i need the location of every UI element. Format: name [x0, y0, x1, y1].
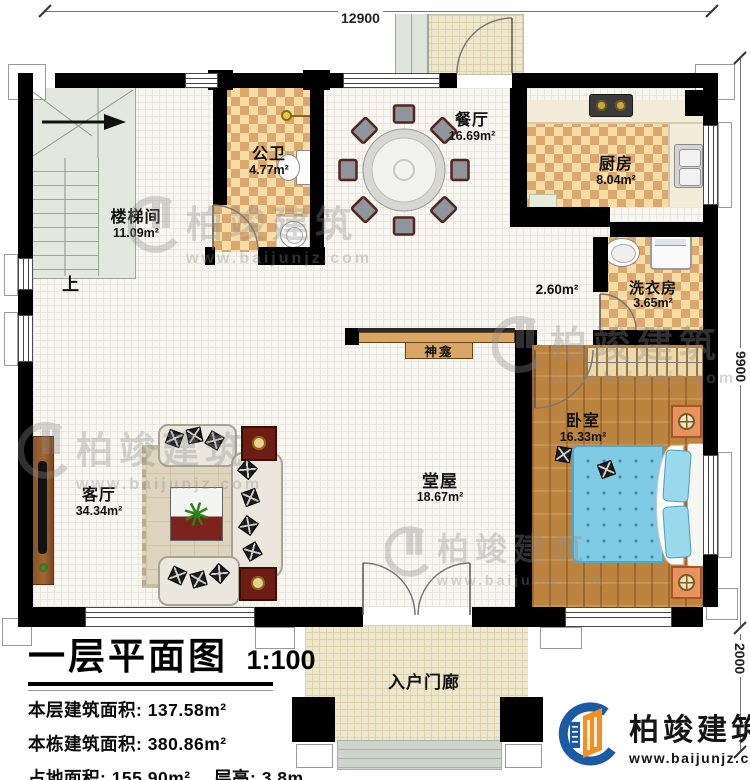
window	[343, 73, 440, 88]
room-label-bedroom: 卧室16.33m²	[560, 414, 607, 444]
coffee-table	[170, 487, 223, 541]
wall-segment	[258, 247, 325, 265]
sink-basin	[679, 168, 701, 186]
laundry-sink-icon	[604, 238, 640, 267]
dimension-height-main: 9900	[733, 348, 749, 385]
wall-segment	[610, 222, 705, 237]
wall-segment	[310, 88, 324, 265]
brand-url: www.baijunjz.com	[629, 750, 750, 766]
dimension-line-right	[740, 58, 741, 628]
info-line-floor-area: 本层建筑面积: 137.58m²	[28, 697, 328, 722]
shrine-wall	[358, 328, 515, 332]
plan-scale: 1:100	[246, 645, 315, 676]
wall-segment	[510, 207, 610, 227]
wall-segment	[18, 73, 33, 258]
wall-segment	[515, 330, 537, 345]
nightstand	[671, 566, 702, 599]
sink-bowl	[611, 244, 636, 263]
title-block: 一层平面图 1:100 本层建筑面积: 137.58m² 本栋建筑面积: 380…	[28, 626, 328, 780]
bed	[572, 443, 703, 565]
window	[18, 315, 33, 362]
window-sill	[4, 312, 18, 366]
nightstand-lamp-icon	[678, 574, 695, 591]
burner-icon	[596, 100, 607, 111]
tv-icon	[38, 461, 47, 554]
brand-logo: 柏竣建筑 www.baijunjz.com	[550, 700, 750, 770]
sofa-cushion	[555, 446, 572, 463]
floor-plan-canvas: 12900 9900 2000	[0, 0, 750, 780]
sofa-cushion	[186, 427, 204, 445]
towel-bar	[291, 115, 311, 117]
nightstand-lamp-icon	[678, 413, 695, 430]
plant-small-icon	[39, 563, 48, 572]
shrine-label: 神龛	[424, 345, 453, 359]
kitchen-sink-icon	[674, 144, 703, 188]
wall-segment	[55, 73, 185, 88]
side-table	[239, 567, 277, 601]
wall-segment	[18, 362, 33, 607]
window	[703, 455, 718, 555]
pillow	[662, 449, 692, 503]
tv-cabinet	[32, 436, 54, 585]
dimension-width: 12900	[338, 10, 383, 26]
pillow	[662, 505, 692, 559]
room-label-bathroom: 公卫4.77m²	[249, 147, 289, 177]
wall-segment	[440, 73, 457, 88]
wall-segment	[685, 90, 711, 116]
wall-segment	[500, 697, 543, 742]
sink-basin	[679, 149, 701, 167]
window	[185, 73, 218, 88]
side-table	[241, 426, 277, 461]
wardrobe	[585, 347, 703, 377]
towel-ring-icon	[281, 110, 311, 122]
nightstand	[671, 405, 702, 438]
wall-segment	[345, 328, 359, 345]
wall-segment	[303, 70, 330, 90]
wall-segment	[213, 88, 227, 205]
wall-segment	[593, 330, 718, 345]
title-underline-thin	[28, 690, 273, 691]
wall-segment	[205, 247, 215, 265]
table-medallion	[252, 436, 266, 450]
room-label-hall: 堂屋18.67m²	[417, 473, 464, 504]
brand-text: 柏竣建筑 www.baijunjz.com	[629, 705, 750, 766]
window-sill	[718, 122, 732, 208]
wall-segment	[510, 88, 527, 207]
brand-name: 柏竣建筑	[629, 705, 750, 749]
washing-machine-icon	[650, 234, 692, 270]
stove-icon	[589, 94, 633, 117]
wall-segment	[255, 607, 363, 627]
dimension-height-porch: 2000	[732, 640, 748, 677]
washer-panel	[655, 239, 686, 246]
stairs-up-label: 上	[62, 276, 80, 294]
sink-bowl	[286, 227, 303, 244]
wall-segment	[703, 555, 718, 607]
shrine-box: 神龛	[405, 342, 473, 359]
bed-mattress	[572, 445, 664, 563]
burner-icon	[615, 100, 626, 111]
top-porch-step	[395, 14, 429, 73]
table-medallion	[251, 576, 265, 590]
stair-treads	[32, 158, 99, 276]
porch-steps	[337, 740, 502, 770]
room-label-corridor: 2.60m²	[536, 283, 579, 297]
window	[18, 258, 33, 290]
plan-title: 一层平面图	[28, 626, 228, 680]
window-sill	[4, 254, 18, 296]
window	[85, 607, 255, 627]
wall-segment	[515, 345, 532, 607]
room-label-dining: 餐厅16.69m²	[449, 113, 496, 143]
wall-segment	[593, 237, 608, 292]
window-sill	[505, 744, 542, 768]
room-label-stairwell: 楼梯间11.09m²	[110, 210, 161, 240]
wall-segment	[472, 607, 565, 627]
window	[565, 607, 672, 627]
wall-segment	[512, 73, 712, 88]
info-line-footprint: 占地面积: 155.90m² 层高: 3.8m	[28, 765, 328, 780]
window-sill	[540, 627, 582, 649]
brand-logo-icon	[550, 700, 624, 770]
window	[703, 125, 718, 205]
room-label-laundry: 洗衣房3.65m²	[629, 281, 677, 310]
window-sill	[718, 452, 732, 558]
title-underline	[28, 682, 273, 686]
wall-segment	[18, 607, 85, 627]
room-label-kitchen: 厨房8.04m²	[596, 157, 636, 187]
room-label-porch: 入户门廊	[388, 674, 460, 692]
wall-segment	[672, 607, 703, 627]
info-line-building-area: 本栋建筑面积: 380.86m²	[28, 731, 328, 756]
wall-segment	[18, 290, 33, 315]
bath-sink-icon	[280, 221, 307, 248]
room-label-living: 客厅34.34m²	[76, 488, 123, 518]
